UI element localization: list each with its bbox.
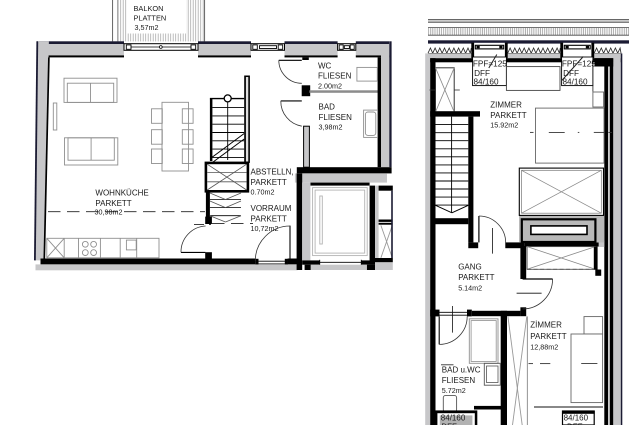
svg-text:PLATTEN: PLATTEN: [134, 14, 167, 23]
svg-text:PARKETT: PARKETT: [95, 199, 131, 208]
svg-text:ZIMMER: ZIMMER: [490, 100, 522, 109]
svg-text:84/160: 84/160: [441, 414, 466, 423]
svg-text:WOHNKÜCHE: WOHNKÜCHE: [95, 188, 148, 197]
svg-text:3,98m2: 3,98m2: [319, 122, 343, 131]
svg-text:BAD: BAD: [319, 103, 336, 112]
svg-text:GANG: GANG: [458, 262, 482, 271]
svg-text:ABSTELLN,: ABSTELLN,: [251, 168, 294, 177]
svg-text:12,88m2: 12,88m2: [530, 342, 558, 351]
svg-text:FLIESEN: FLIESEN: [319, 113, 353, 122]
svg-text:2.00m2: 2.00m2: [318, 82, 342, 91]
svg-text:10,72m2: 10,72m2: [251, 224, 279, 233]
svg-text:PARKETT: PARKETT: [530, 332, 566, 341]
svg-text:3,57m2: 3,57m2: [135, 23, 159, 32]
svg-text:BAD u.WC: BAD u.WC: [442, 366, 481, 375]
svg-text:FLIESEN: FLIESEN: [442, 376, 476, 385]
svg-text:PARKETT: PARKETT: [251, 178, 287, 187]
svg-text:FLIESEN: FLIESEN: [318, 72, 352, 81]
svg-text:84/160: 84/160: [563, 77, 588, 86]
svg-text:84/160: 84/160: [564, 414, 589, 423]
svg-text:5.72m2: 5.72m2: [442, 386, 466, 395]
svg-text:84/160: 84/160: [474, 77, 499, 86]
svg-text:VORRAUM: VORRAUM: [251, 204, 292, 213]
svg-text:FPF=125: FPF=125: [473, 60, 507, 69]
svg-text:WC: WC: [318, 61, 332, 70]
svg-text:PARKETT: PARKETT: [251, 215, 287, 224]
svg-text:PARKETT: PARKETT: [490, 111, 526, 120]
svg-text:PARKETT: PARKETT: [458, 273, 494, 282]
svg-text:0.70m2: 0.70m2: [251, 188, 275, 197]
svg-text:5.14m2: 5.14m2: [458, 283, 482, 292]
svg-text:30,98m2: 30,98m2: [95, 208, 123, 217]
svg-text:BALKON: BALKON: [134, 4, 164, 13]
svg-text:ZİMMER: ZİMMER: [530, 321, 562, 330]
svg-text:15.92m2: 15.92m2: [490, 121, 518, 130]
